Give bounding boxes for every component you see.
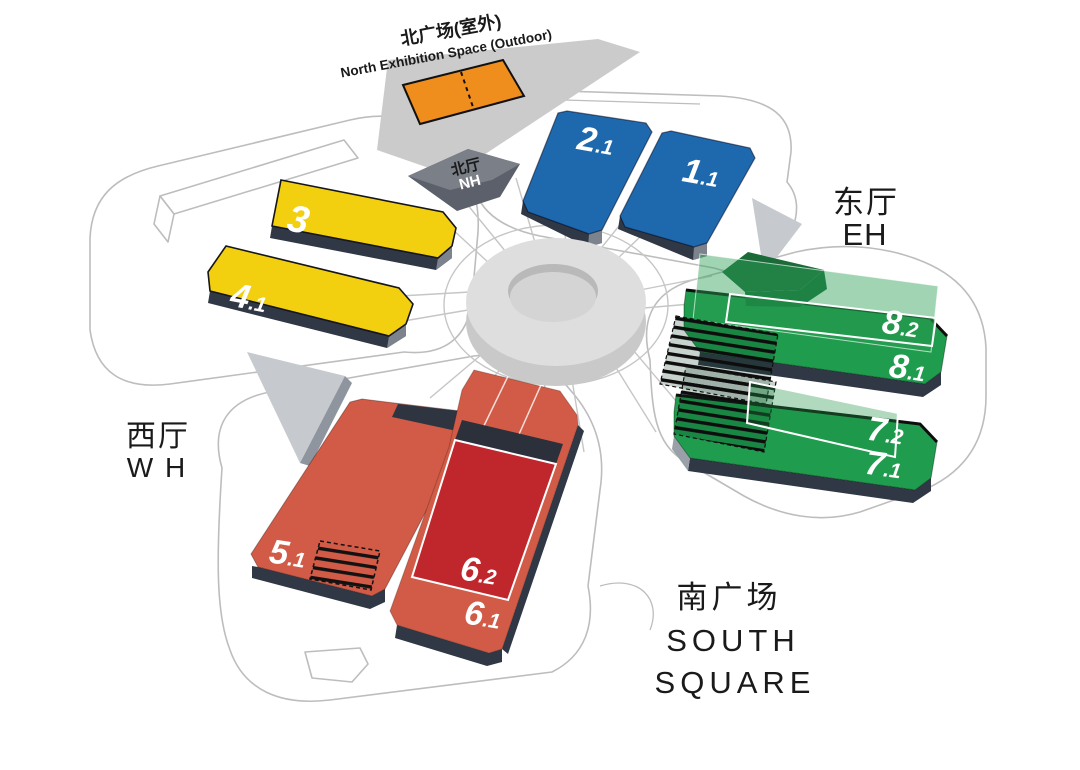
west-hall-label-en: W H xyxy=(127,452,187,483)
venue-map-canvas: 北厅 NH xyxy=(0,0,1080,770)
east-hall-label-en: EH xyxy=(842,217,887,252)
center-ring xyxy=(466,238,646,386)
west-hall-label-zh: 西厅 xyxy=(126,420,190,453)
south-square-label-en2: SQUARE xyxy=(655,665,816,700)
south-square-label-en1: SOUTH xyxy=(666,623,800,658)
venue-map: 北厅 NH xyxy=(0,0,1080,770)
south-square-label-zh: 南广场 xyxy=(677,580,782,615)
east-hall-label-zh: 东厅 xyxy=(833,185,899,220)
